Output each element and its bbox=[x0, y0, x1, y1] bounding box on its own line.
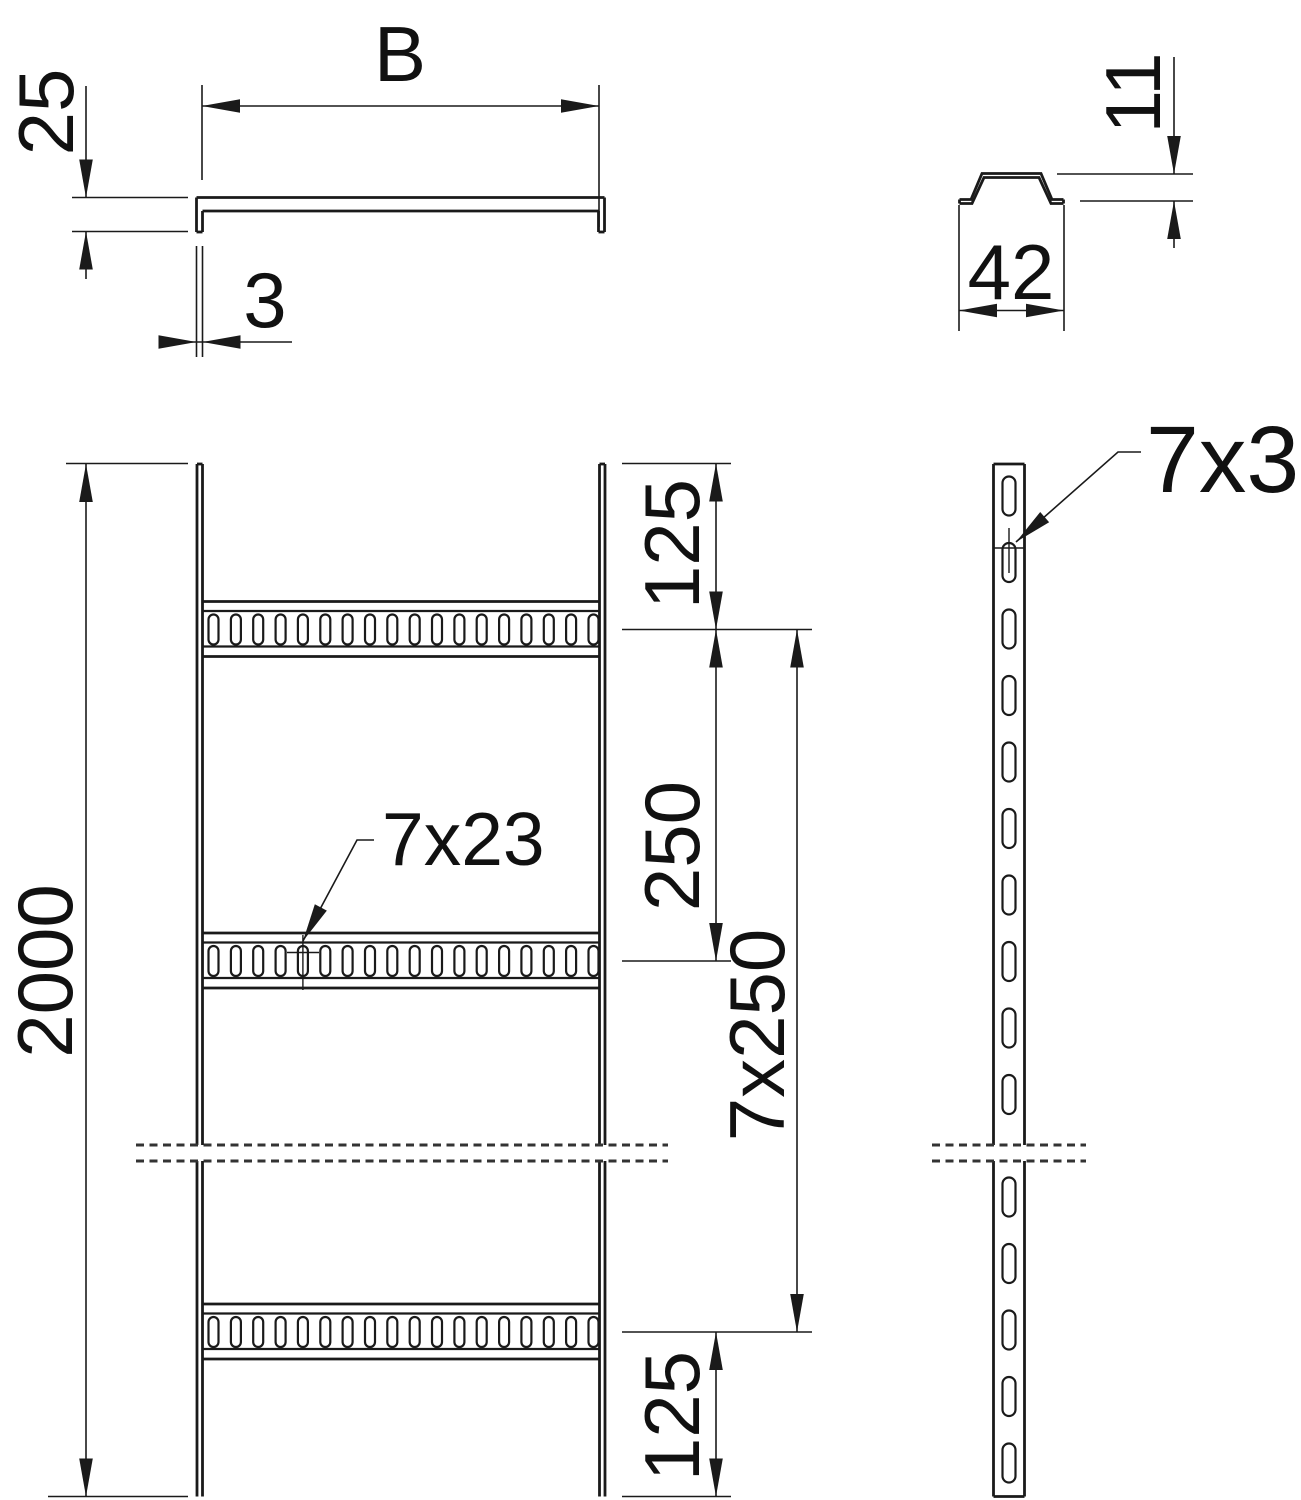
dimension-11: 11 bbox=[1057, 53, 1193, 248]
front-rungs bbox=[203, 602, 600, 1360]
side-rail-slots bbox=[1003, 477, 1016, 1483]
dim-7x250-label: 7x250 bbox=[713, 929, 801, 1142]
dimension-25: 25 bbox=[2, 69, 188, 279]
section-view-b: B 25 3 bbox=[2, 10, 605, 357]
rung-profile-view: 11 42 bbox=[959, 53, 1193, 331]
rung-slot-callout: 7x23 bbox=[287, 797, 545, 990]
dim-11-label: 11 bbox=[1089, 53, 1177, 134]
front-view: 7x23 2000 125 250 bbox=[1, 464, 812, 1497]
side-break-lines bbox=[932, 1145, 1086, 1161]
dim-b-label: B bbox=[374, 10, 426, 98]
dim-3-label: 3 bbox=[243, 256, 286, 344]
dim-25-label: 25 bbox=[2, 69, 90, 156]
cable-ladder-drawing: B 25 3 bbox=[0, 0, 1301, 1500]
dim-42-label: 42 bbox=[968, 228, 1055, 316]
dim-250-label: 250 bbox=[628, 781, 716, 911]
dimension-125-bottom: 125 bbox=[622, 1332, 731, 1497]
rung-1 bbox=[203, 602, 600, 657]
rung-profile-outline bbox=[960, 174, 1064, 204]
rail-slot-label: 7x30 bbox=[1146, 407, 1301, 513]
rail-slot-callout: 7x30 bbox=[994, 407, 1301, 573]
rung-3 bbox=[203, 1304, 600, 1359]
dim-125-bottom-label: 125 bbox=[628, 1351, 716, 1481]
front-break-lines bbox=[136, 1145, 668, 1161]
dimension-3: 3 bbox=[159, 246, 293, 357]
dimension-125-top: 125 bbox=[622, 464, 812, 630]
dimension-b: B bbox=[202, 10, 599, 227]
dimension-42: 42 bbox=[959, 205, 1064, 331]
profile-b-outline bbox=[197, 198, 605, 233]
dim-2000-label: 2000 bbox=[1, 884, 89, 1058]
rung-2 bbox=[203, 933, 600, 988]
side-view: 7x30 bbox=[932, 407, 1301, 1497]
dim-125-top-label: 125 bbox=[628, 479, 716, 609]
dimension-2000: 2000 bbox=[1, 464, 188, 1497]
dimension-7x250: 7x250 bbox=[622, 630, 812, 1333]
rung-slot-label: 7x23 bbox=[382, 797, 545, 881]
dimension-250: 250 bbox=[622, 630, 731, 962]
technical-drawing-page: B 25 3 bbox=[0, 0, 1301, 1500]
